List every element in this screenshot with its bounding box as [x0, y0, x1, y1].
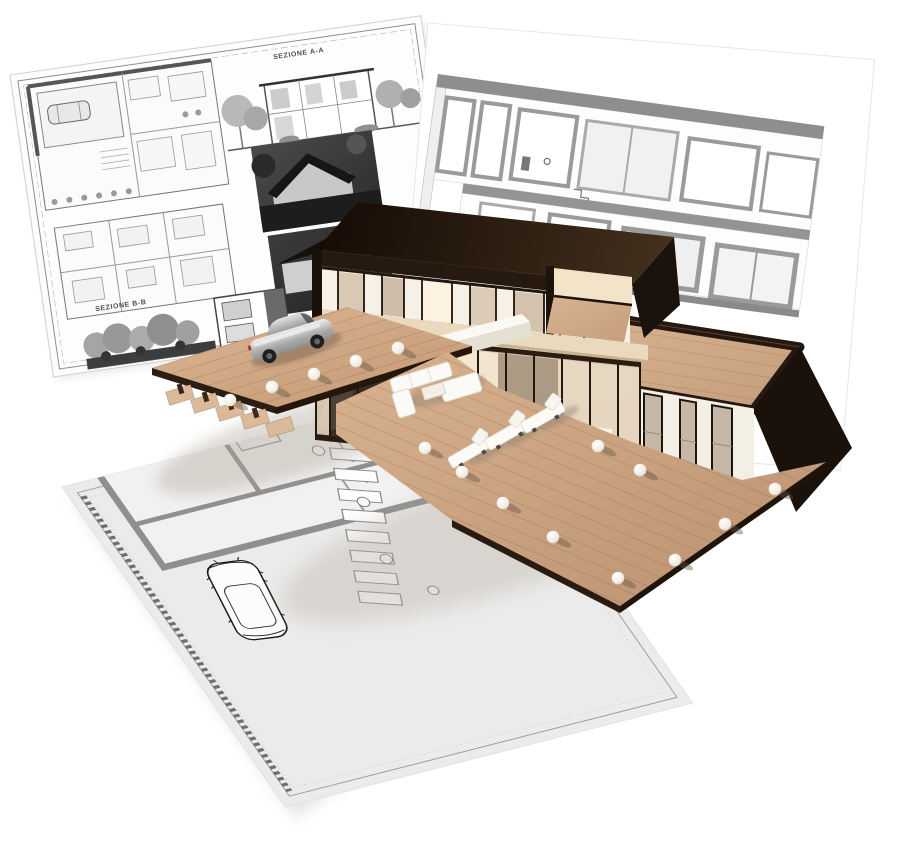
- architectural-visualization: SEZIONE A-A: [0, 0, 900, 850]
- ground-floor-plan: [28, 60, 229, 210]
- upper-balcony-open-corner: [546, 266, 632, 342]
- scene-canvas: SEZIONE A-A: [0, 0, 900, 850]
